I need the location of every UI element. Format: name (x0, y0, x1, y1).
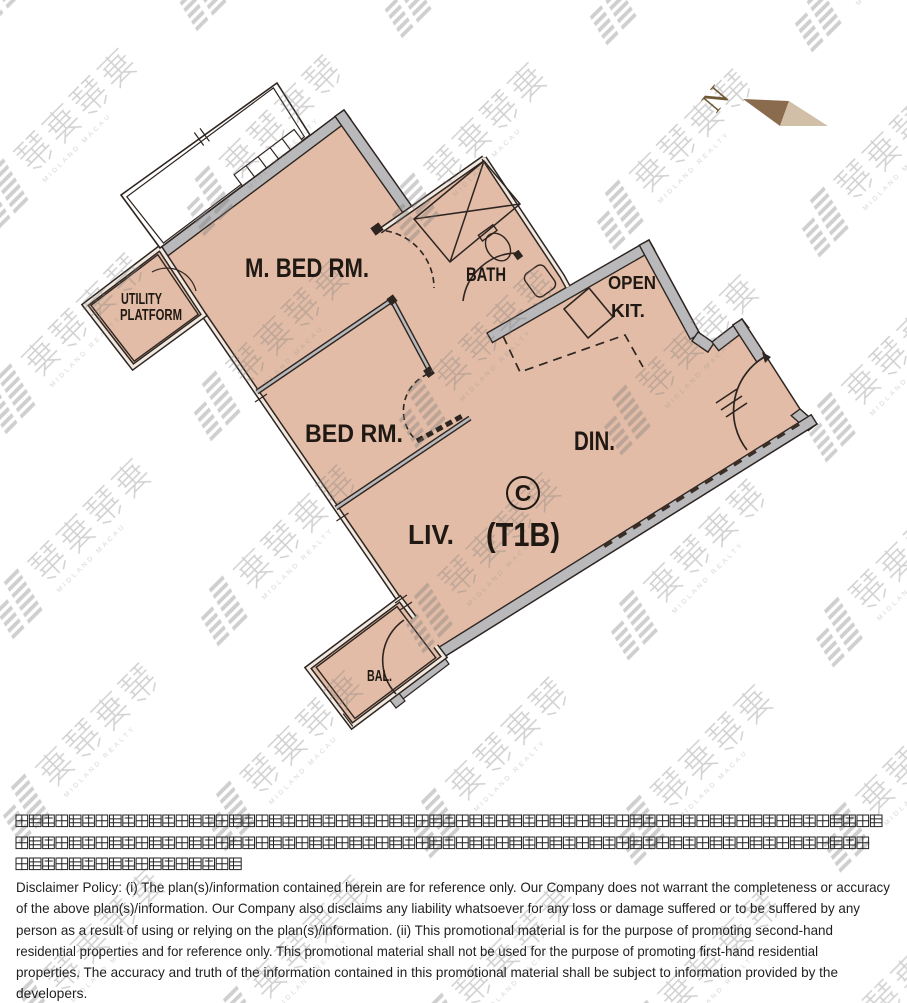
svg-text:person as a result of using or: person as a result of using or relying o… (16, 923, 833, 938)
svg-text:BATH: BATH (466, 265, 506, 286)
svg-text:UTILITY: UTILITY (121, 291, 162, 308)
svg-text:OPEN: OPEN (608, 273, 656, 293)
svg-text:LIV.: LIV. (408, 519, 454, 550)
svg-text:(T1B): (T1B) (486, 516, 560, 553)
svg-text:residential properties and for: residential properties and for reference… (16, 944, 818, 959)
svg-text:BAL.: BAL. (367, 668, 392, 685)
svg-text:properties. The accuracy and t: properties. The accuracy and truth of th… (16, 965, 838, 980)
svg-text:PLATFORM: PLATFORM (120, 307, 182, 324)
svg-text:M. BED RM.: M. BED RM. (245, 253, 369, 283)
svg-text:developers.: developers. (16, 986, 87, 1001)
svg-text:Disclaimer Policy: (i) The pla: Disclaimer Policy: (i) The plan(s)/infor… (16, 880, 890, 895)
svg-text:of the above plan(s)/informati: of the above plan(s)/information. Our Co… (16, 901, 860, 916)
svg-text:DIN.: DIN. (574, 426, 615, 456)
svg-text:C: C (515, 480, 532, 506)
svg-text:BED RM.: BED RM. (305, 420, 403, 448)
svg-text:KIT.: KIT. (611, 301, 645, 321)
